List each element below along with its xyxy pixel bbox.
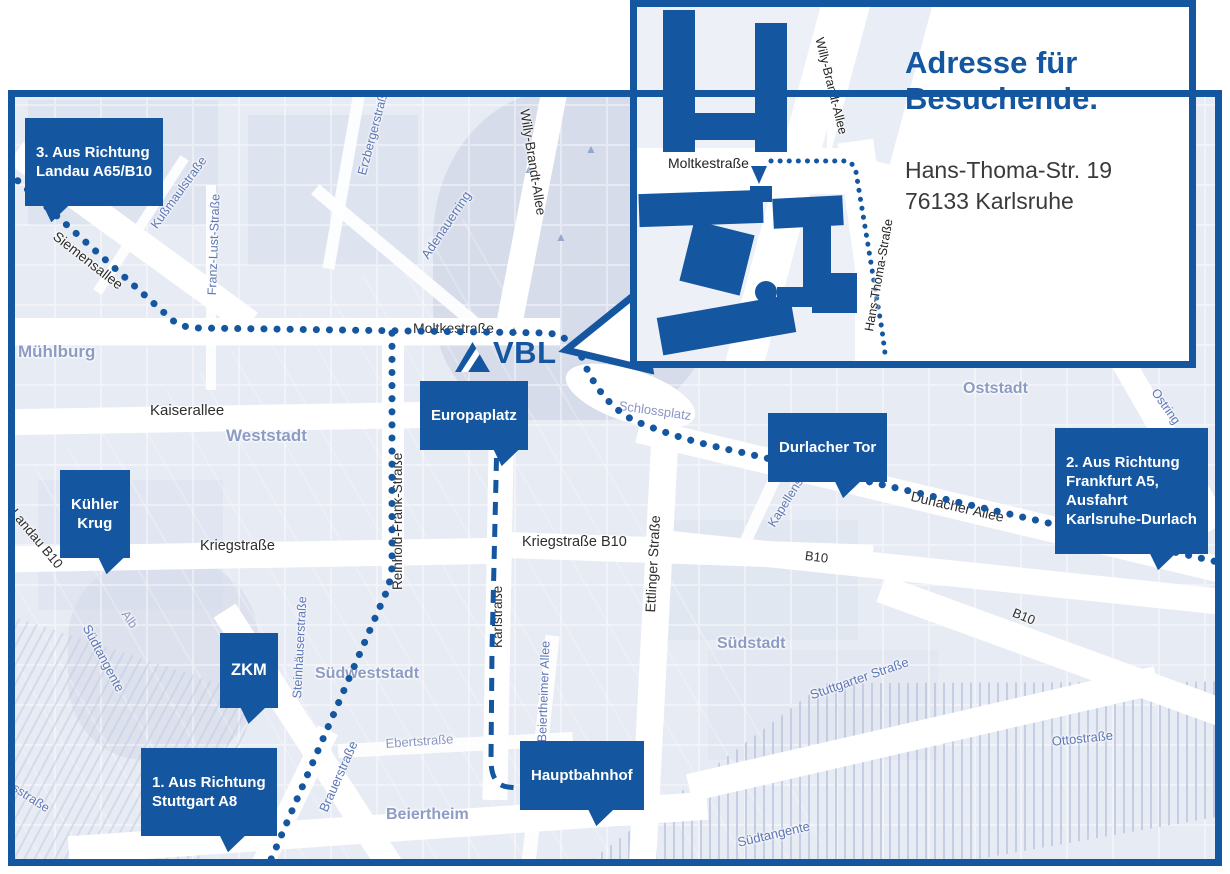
inset-address: Hans-Thoma-Str. 19 76133 Karlsruhe bbox=[905, 155, 1112, 217]
callout-europaplatz-text: Europaplatz bbox=[431, 407, 517, 424]
callout-zkm: ZKM bbox=[220, 633, 278, 708]
callout-route-2: 2. Aus Richtung Frankfurt A5, Ausfahrt K… bbox=[1055, 428, 1208, 554]
callout-kuehler-krug-text: Kühler Krug bbox=[71, 496, 119, 532]
callout-route-1-text: 1. Aus Richtung Stuttgart A8 bbox=[152, 774, 266, 810]
callout-route-3: 3. Aus Richtung Landau A65/B10 bbox=[25, 118, 163, 206]
inset-title: Adresse für Besuchende. bbox=[905, 45, 1098, 116]
callout-route-1: 1. Aus Richtung Stuttgart A8 bbox=[141, 748, 277, 836]
callout-europaplatz: Europaplatz bbox=[420, 381, 528, 450]
map-border-top bbox=[8, 90, 1222, 97]
callout-route-3-text: 3. Aus Richtung Landau A65/B10 bbox=[36, 144, 152, 180]
inset-route bbox=[637, 7, 897, 367]
route-arrow-icon bbox=[751, 166, 767, 184]
route-dotted-stuttgart bbox=[266, 328, 392, 866]
callout-durlacher-tor: Durlacher Tor bbox=[768, 413, 887, 482]
page: ▲ ▲ ▲ ▲ ▲ ▲ Siemensallee Moltkestraße Ka… bbox=[0, 0, 1230, 874]
callout-kuehler-krug: Kühler Krug bbox=[60, 470, 130, 558]
inset-label-moltkestrasse: Moltkestraße bbox=[668, 155, 749, 171]
map-border-right bbox=[1215, 90, 1222, 866]
map-border-left bbox=[8, 90, 15, 866]
map-border-bottom bbox=[8, 859, 1222, 866]
callout-durlacher-tor-text: Durlacher Tor bbox=[779, 439, 876, 456]
callout-zkm-text: ZKM bbox=[231, 661, 267, 679]
callout-route-2-text: 2. Aus Richtung Frankfurt A5, Ausfahrt K… bbox=[1066, 454, 1197, 528]
callout-hauptbahnhof: Hauptbahnhof bbox=[520, 741, 644, 810]
address-inset: Moltkestraße Willy-Brandt-Allee Hans-Tho… bbox=[630, 0, 1196, 368]
callout-hauptbahnhof-text: Hauptbahnhof bbox=[531, 767, 633, 784]
